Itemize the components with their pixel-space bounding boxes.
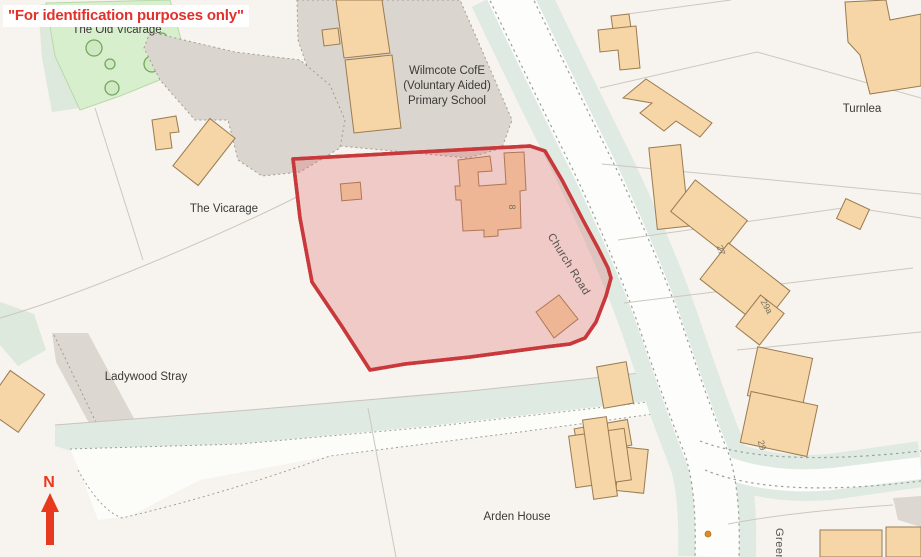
house-number-8: 8 — [507, 204, 517, 209]
map-canvas: The Old Vicarage Wilmcote CofE (Voluntar… — [0, 0, 921, 557]
label-vicarage: The Vicarage — [190, 203, 258, 215]
label-arden-house: Arden House — [483, 511, 550, 523]
tree-icon — [105, 59, 115, 69]
label-school-line1: Wilmcote CofE — [409, 65, 485, 77]
disclaimer-banner: "For identification purposes only" — [3, 5, 249, 27]
poi-dot — [705, 531, 711, 537]
building — [820, 530, 882, 557]
map-viewport[interactable]: The Old Vicarage Wilmcote CofE (Voluntar… — [0, 0, 921, 557]
building — [336, 0, 390, 58]
tree-icon — [105, 81, 119, 95]
label-turnlea: Turnlea — [843, 103, 882, 115]
building — [345, 55, 401, 133]
building — [886, 527, 921, 557]
label-school-line2: (Voluntary Aided) — [403, 80, 491, 92]
label-green-street: Green — [773, 528, 785, 557]
building — [322, 28, 340, 46]
label-school-line3: Primary School — [408, 95, 486, 107]
label-ladywood-stray: Ladywood Stray — [105, 371, 188, 383]
north-arrow-shaft — [46, 511, 54, 545]
north-arrow-label: N — [43, 474, 55, 491]
tree-icon — [86, 40, 102, 56]
